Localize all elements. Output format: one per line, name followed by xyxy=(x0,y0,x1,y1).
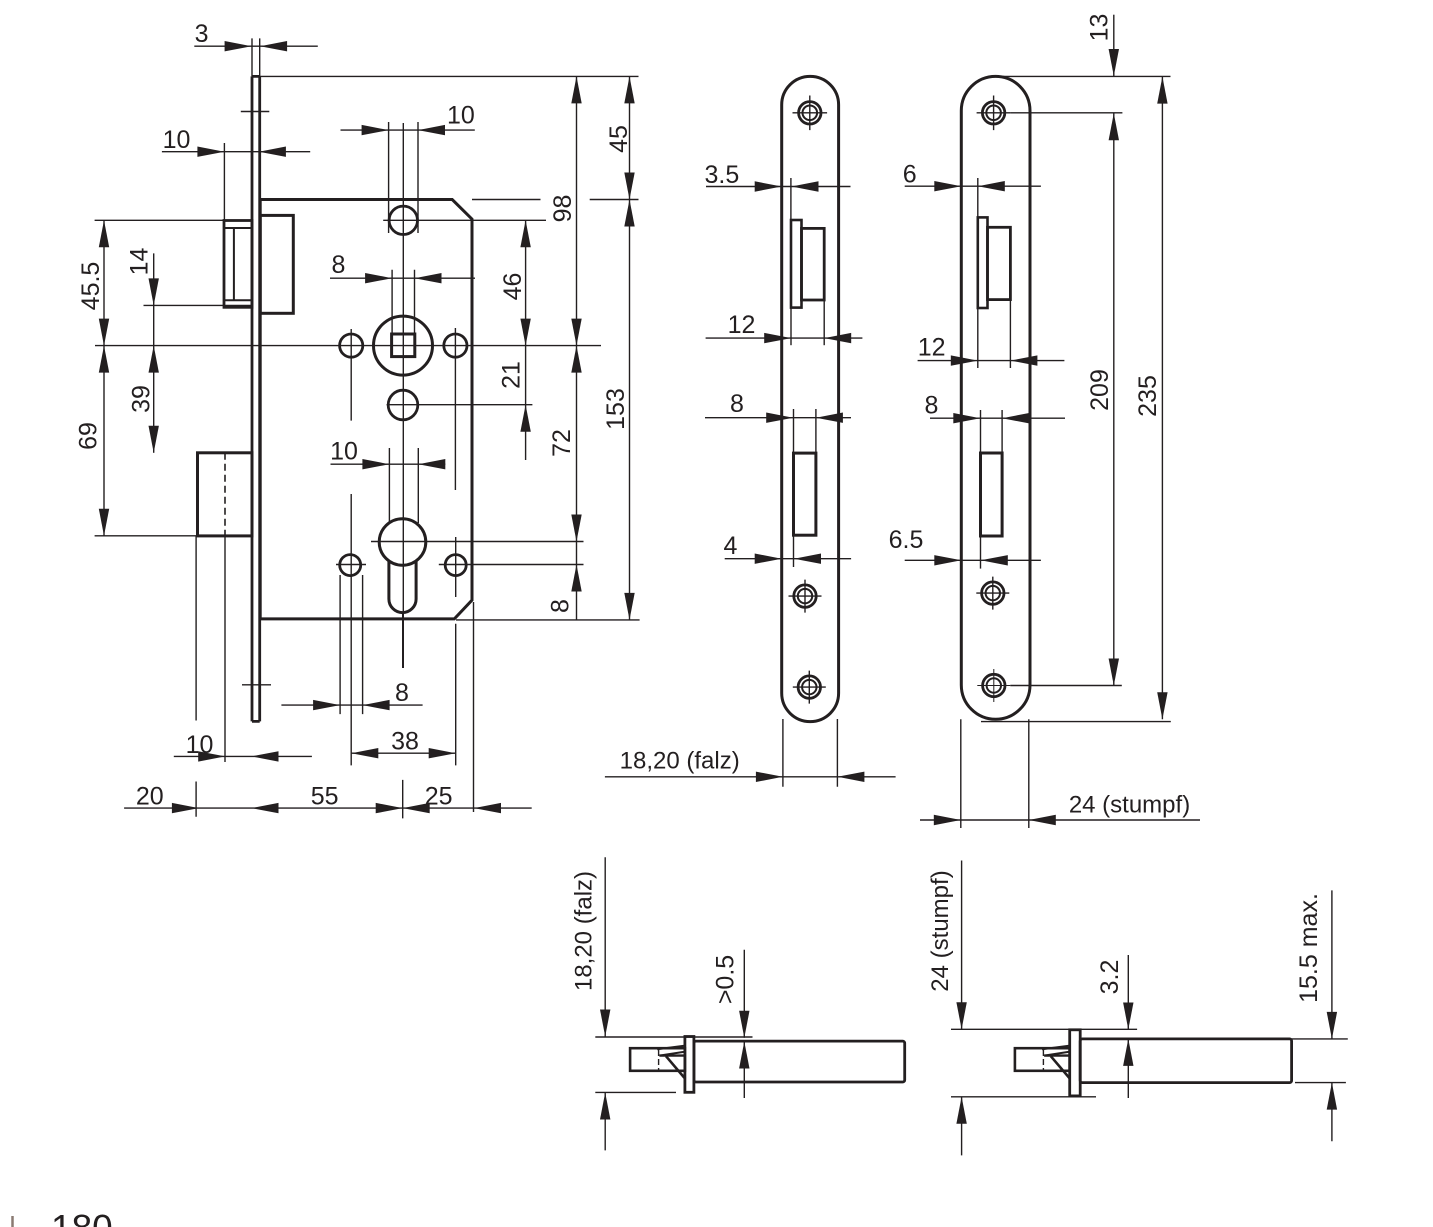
svg-text:8: 8 xyxy=(730,390,744,418)
svg-text:20: 20 xyxy=(136,783,164,811)
svg-text:18,20 (falz): 18,20 (falz) xyxy=(620,748,740,775)
svg-text:38: 38 xyxy=(391,728,419,756)
svg-text:209: 209 xyxy=(1086,369,1114,411)
svg-text:18,20 (falz): 18,20 (falz) xyxy=(571,871,598,991)
svg-text:12: 12 xyxy=(918,334,946,362)
svg-text:25: 25 xyxy=(425,783,453,811)
svg-text:98: 98 xyxy=(549,195,577,223)
svg-text:55: 55 xyxy=(311,783,339,811)
svg-text:14: 14 xyxy=(126,248,154,276)
svg-text:8: 8 xyxy=(547,599,575,613)
svg-text:10: 10 xyxy=(447,102,475,130)
svg-text:10: 10 xyxy=(186,731,214,759)
svg-text:3.2: 3.2 xyxy=(1096,960,1124,995)
svg-text:21: 21 xyxy=(498,361,526,389)
svg-text:8: 8 xyxy=(925,391,939,419)
svg-text:8: 8 xyxy=(395,679,409,707)
svg-text:45.5: 45.5 xyxy=(77,262,105,311)
svg-text:8: 8 xyxy=(332,251,346,279)
svg-text:153: 153 xyxy=(602,388,630,430)
svg-text:46: 46 xyxy=(499,273,527,301)
svg-text:39: 39 xyxy=(128,385,156,413)
svg-text:3: 3 xyxy=(195,20,209,48)
svg-text:12: 12 xyxy=(728,311,756,339)
svg-text:13: 13 xyxy=(1086,14,1114,42)
svg-text:24 (stumpf): 24 (stumpf) xyxy=(1069,792,1190,819)
svg-text:72: 72 xyxy=(548,429,576,457)
svg-text:10: 10 xyxy=(330,438,358,466)
svg-text:6.5: 6.5 xyxy=(889,526,924,554)
svg-text:10: 10 xyxy=(163,126,191,154)
svg-text:235: 235 xyxy=(1134,375,1162,417)
svg-text:3.5: 3.5 xyxy=(705,161,740,189)
svg-text:4: 4 xyxy=(724,532,738,560)
svg-text:>0.5: >0.5 xyxy=(712,955,740,1004)
svg-text:24 (stumpf): 24 (stumpf) xyxy=(927,870,954,991)
svg-text:6: 6 xyxy=(903,161,917,189)
svg-text:15.5 max.: 15.5 max. xyxy=(1295,893,1323,1003)
svg-text:45: 45 xyxy=(605,125,633,153)
svg-text:69: 69 xyxy=(75,422,103,450)
svg-text:180: 180 xyxy=(51,1208,113,1227)
